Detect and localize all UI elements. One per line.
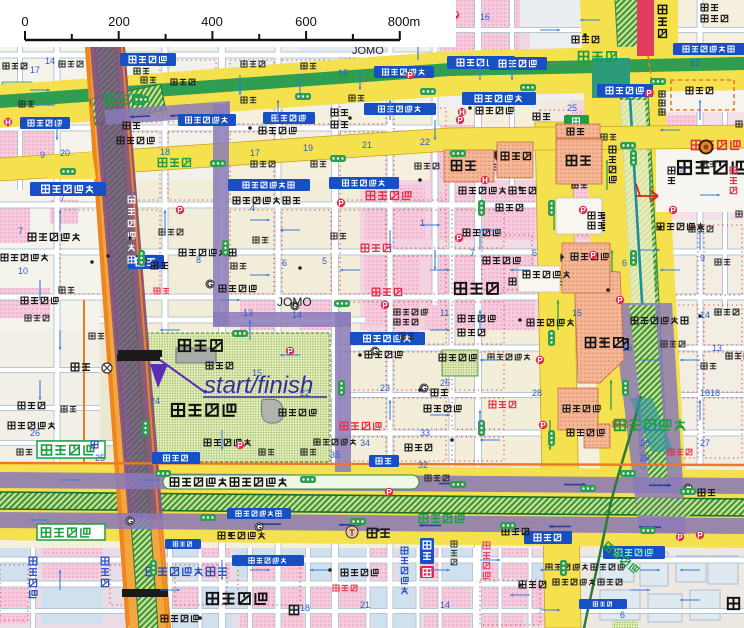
svg-text:17: 17 (250, 148, 260, 158)
svg-text:G: G (256, 523, 262, 532)
svg-text:start/finish: start/finish (204, 372, 313, 399)
svg-text:28: 28 (640, 453, 650, 463)
svg-text:13: 13 (243, 308, 253, 318)
svg-text:18: 18 (710, 388, 720, 398)
svg-text:7: 7 (60, 193, 65, 203)
svg-text:14: 14 (700, 310, 710, 320)
svg-text:22: 22 (420, 137, 430, 147)
svg-text:6: 6 (282, 258, 287, 268)
svg-text:27: 27 (700, 438, 710, 448)
svg-text:21: 21 (362, 140, 372, 150)
svg-text:18: 18 (160, 147, 170, 157)
svg-text:14: 14 (440, 600, 450, 610)
svg-text:15: 15 (572, 308, 582, 318)
svg-text:P: P (580, 206, 586, 215)
svg-text:6: 6 (532, 248, 537, 258)
svg-text:P: P (386, 488, 392, 497)
svg-text:12: 12 (690, 58, 700, 68)
svg-text:P: P (540, 421, 546, 430)
svg-text:T: T (349, 528, 355, 538)
svg-text:P: P (617, 296, 623, 305)
svg-text:28: 28 (532, 388, 542, 398)
svg-text:32: 32 (418, 460, 428, 470)
svg-text:P: P (677, 533, 683, 542)
svg-text:800m: 800m (388, 14, 421, 29)
svg-text:5: 5 (322, 256, 327, 266)
svg-text:4: 4 (250, 203, 255, 213)
svg-text:18: 18 (700, 388, 710, 398)
svg-text:19: 19 (303, 143, 313, 153)
svg-text:16: 16 (480, 12, 490, 22)
svg-text:G: G (207, 280, 213, 289)
svg-text:11: 11 (440, 308, 449, 318)
svg-text:P: P (382, 301, 388, 310)
svg-text:24: 24 (150, 396, 160, 406)
svg-text:9: 9 (700, 253, 705, 263)
svg-text:G: G (421, 384, 427, 393)
svg-text:4: 4 (680, 165, 685, 175)
svg-text:15: 15 (338, 68, 348, 78)
svg-text:P: P (407, 71, 413, 80)
svg-text:8: 8 (196, 255, 201, 265)
svg-text:13: 13 (712, 343, 722, 353)
svg-text:JOMO: JOMO (277, 295, 312, 309)
svg-text:G: G (127, 517, 133, 526)
svg-text:P: P (670, 206, 676, 215)
svg-text:25: 25 (440, 378, 450, 388)
svg-text:P: P (590, 251, 596, 260)
svg-text:H: H (482, 176, 488, 185)
svg-text:9: 9 (40, 150, 45, 160)
svg-text:13: 13 (622, 343, 632, 353)
svg-text:25: 25 (567, 103, 577, 113)
svg-text:23: 23 (380, 383, 390, 393)
svg-text:P: P (237, 441, 243, 450)
svg-text:P: P (456, 234, 462, 243)
svg-text:21: 21 (360, 600, 370, 610)
svg-text:H: H (459, 108, 465, 117)
svg-text:25: 25 (95, 453, 105, 463)
svg-text:P: P (697, 531, 703, 540)
svg-text:2: 2 (130, 190, 135, 200)
svg-text:P: P (537, 356, 543, 365)
svg-text:14: 14 (292, 310, 302, 320)
svg-text:33: 33 (420, 428, 430, 438)
svg-text:35: 35 (330, 450, 340, 460)
svg-text:6: 6 (622, 258, 627, 268)
svg-text:14: 14 (45, 56, 55, 66)
svg-text:28: 28 (640, 438, 650, 448)
svg-text:0: 0 (21, 14, 28, 29)
svg-text:P: P (457, 116, 463, 125)
svg-text:600: 600 (295, 14, 317, 29)
svg-text:6: 6 (620, 610, 625, 620)
svg-text:G: G (372, 347, 378, 356)
svg-text:10: 10 (18, 266, 28, 276)
svg-text:7: 7 (470, 248, 475, 258)
svg-text:18: 18 (300, 603, 310, 613)
svg-text:200: 200 (108, 14, 130, 29)
svg-text:P: P (646, 89, 652, 98)
svg-text:17: 17 (30, 65, 40, 75)
svg-text:26: 26 (30, 428, 40, 438)
svg-text:20: 20 (60, 148, 70, 158)
svg-text:7: 7 (18, 226, 23, 236)
svg-text:H: H (5, 118, 11, 127)
svg-text:400: 400 (201, 14, 223, 29)
svg-text:P: P (338, 199, 344, 208)
svg-text:1: 1 (420, 218, 425, 228)
svg-text:P: P (177, 206, 183, 215)
svg-text:34: 34 (360, 438, 370, 448)
